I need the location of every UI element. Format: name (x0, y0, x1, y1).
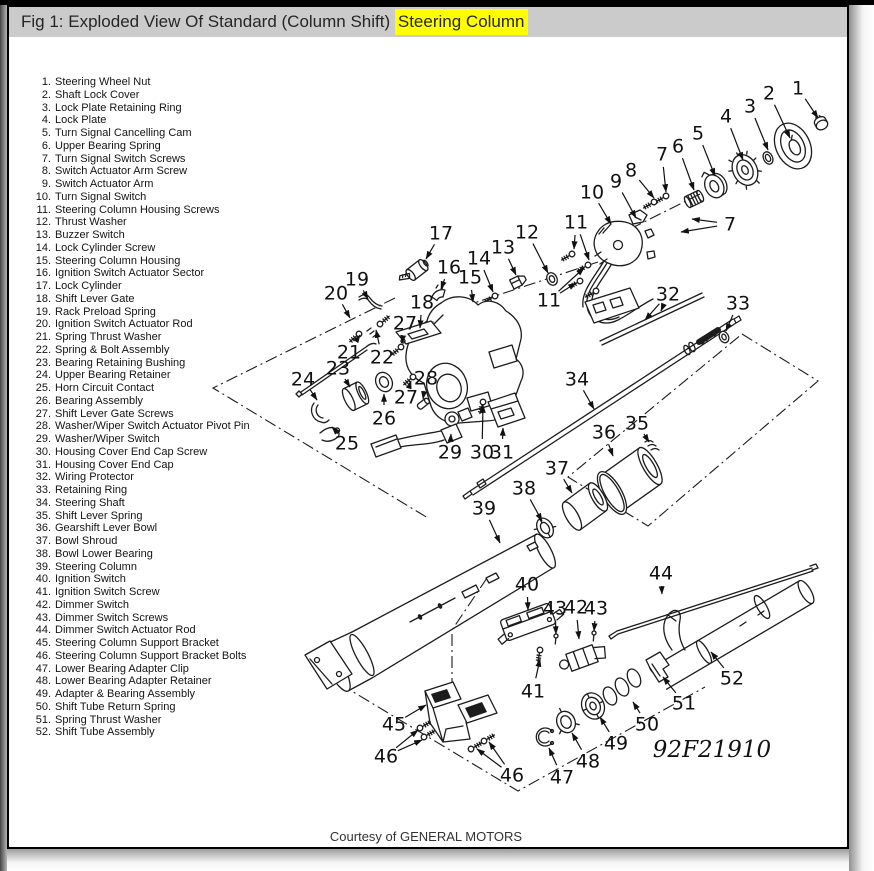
part-name: Steering Wheel Nut (55, 76, 150, 88)
part-number: 50. (28, 701, 51, 714)
panel-shadow-right (849, 5, 874, 871)
parts-list-item: 47.Lower Bearing Adapter Clip (28, 663, 250, 676)
parts-list-item: 34.Steering Shaft (28, 497, 250, 510)
part-number: 12. (28, 216, 51, 229)
parts-list-item: 13.Buzzer Switch (28, 229, 250, 242)
part-name: Shaft Lock Cover (55, 89, 139, 101)
parts-list-item: 4.Lock Plate (28, 114, 250, 127)
parts-list-item: 10.Turn Signal Switch (28, 191, 250, 204)
part-name: Steering Column Support Bracket (55, 637, 219, 649)
parts-list-item: 14.Lock Cylinder Screw (28, 242, 250, 255)
parts-list-item: 17.Lock Cylinder (28, 280, 250, 293)
part-number: 52. (28, 726, 51, 739)
part-name: Turn Signal Cancelling Cam (55, 127, 192, 139)
part-number: 9. (28, 178, 51, 191)
parts-list-item: 28.Washer/Wiper Switch Actuator Pivot Pi… (28, 420, 250, 433)
part-name: Dimmer Switch Screws (55, 612, 168, 624)
part-number: 13. (28, 229, 51, 242)
figure-title-bar: Fig 1: Exploded View Of Standard (Column… (9, 7, 847, 37)
parts-list-item: 12.Thrust Washer (28, 216, 250, 229)
part-number: 4. (28, 114, 51, 127)
parts-list-item: 27.Shift Lever Gate Screws (28, 408, 250, 421)
parts-list-item: 9.Switch Actuator Arm (28, 178, 250, 191)
parts-list-item: 23.Bearing Retaining Bushing (28, 357, 250, 370)
part-name: Upper Bearing Retainer (55, 369, 171, 381)
window-left-edge (0, 5, 7, 871)
part-name: Switch Actuator Arm (55, 178, 153, 190)
parts-list-item: 39.Steering Column (28, 561, 250, 574)
part-number: 34. (28, 497, 51, 510)
part-name: Lock Plate (55, 114, 106, 126)
part-number: 44. (28, 624, 51, 637)
part-name: Buzzer Switch (55, 229, 125, 241)
part-name: Steering Column Housing (55, 255, 180, 267)
parts-list-item: 41.Ignition Switch Screw (28, 586, 250, 599)
parts-list-item: 36.Gearshift Lever Bowl (28, 522, 250, 535)
parts-list-item: 48.Lower Bearing Adapter Retainer (28, 675, 250, 688)
part-name: Steering Column Support Bracket Bolts (55, 650, 246, 662)
part-name: Ignition Switch (55, 573, 126, 585)
part-number: 36. (28, 522, 51, 535)
part-number: 23. (28, 357, 51, 370)
parts-list-item: 22.Spring & Bolt Assembly (28, 344, 250, 357)
part-name: Lock Cylinder Screw (55, 242, 155, 254)
part-name: Dimmer Switch (55, 599, 129, 611)
parts-list-item: 52.Shift Tube Assembly (28, 726, 250, 739)
part-name: Housing Cover End Cap Screw (55, 446, 207, 458)
part-number: 20. (28, 318, 51, 331)
parts-list-item: 30.Housing Cover End Cap Screw (28, 446, 250, 459)
part-name: Turn Signal Switch (55, 191, 146, 203)
part-number: 17. (28, 280, 51, 293)
parts-list-item: 7.Turn Signal Switch Screws (28, 153, 250, 166)
parts-list-item: 40.Ignition Switch (28, 573, 250, 586)
part-number: 16. (28, 267, 51, 280)
parts-list-item: 18.Shift Lever Gate (28, 293, 250, 306)
part-name: Spring & Bolt Assembly (55, 344, 169, 356)
part-number: 18. (28, 293, 51, 306)
part-number: 7. (28, 153, 51, 166)
part-number: 39. (28, 561, 51, 574)
parts-list-item: 5.Turn Signal Cancelling Cam (28, 127, 250, 140)
panel-shadow-bottom (7, 847, 849, 871)
figure-title-highlight: Steering Column (395, 9, 528, 35)
part-number: 14. (28, 242, 51, 255)
parts-list-item: 16.Ignition Switch Actuator Sector (28, 267, 250, 280)
credit-line: Courtesy of GENERAL MOTORS (7, 829, 845, 844)
part-name: Thrust Washer (55, 216, 127, 228)
part-name: Bowl Shroud (55, 535, 117, 547)
parts-list-item: 6.Upper Bearing Spring (28, 140, 250, 153)
parts-list-item: 29.Washer/Wiper Switch (28, 433, 250, 446)
part-name: Retaining Ring (55, 484, 127, 496)
parts-list-item: 15.Steering Column Housing (28, 255, 250, 268)
part-name: Spring Thrust Washer (55, 714, 161, 726)
part-name: Washer/Wiper Switch Actuator Pivot Pin (55, 420, 250, 432)
part-number: 3. (28, 102, 51, 115)
part-number: 22. (28, 344, 51, 357)
part-name: Ignition Switch Actuator Sector (55, 267, 204, 279)
figure-title: Fig 1: Exploded View Of Standard (Column… (21, 12, 395, 32)
parts-list-item: 1.Steering Wheel Nut (28, 76, 250, 89)
parts-list-item: 49.Adapter & Bearing Assembly (28, 688, 250, 701)
part-number: 41. (28, 586, 51, 599)
part-name: Adapter & Bearing Assembly (55, 688, 195, 700)
part-number: 15. (28, 255, 51, 268)
part-number: 43. (28, 612, 51, 625)
part-number: 10. (28, 191, 51, 204)
part-number: 45. (28, 637, 51, 650)
part-name: Lock Cylinder (55, 280, 122, 292)
part-number: 38. (28, 548, 51, 561)
part-name: Horn Circuit Contact (55, 382, 154, 394)
part-name: Gearshift Lever Bowl (55, 522, 157, 534)
part-name: Shift Tube Return Spring (55, 701, 175, 713)
parts-list-item: 33.Retaining Ring (28, 484, 250, 497)
part-number: 48. (28, 675, 51, 688)
part-name: Lower Bearing Adapter Clip (55, 663, 189, 675)
part-name: Steering Shaft (55, 497, 125, 509)
parts-list-item: 21.Spring Thrust Washer (28, 331, 250, 344)
part-number: 30. (28, 446, 51, 459)
part-number: 35. (28, 510, 51, 523)
parts-list-item: 32.Wiring Protector (28, 471, 250, 484)
part-number: 28. (28, 420, 51, 433)
parts-list-item: 3.Lock Plate Retaining Ring (28, 102, 250, 115)
parts-list-item: 26.Bearing Assembly (28, 395, 250, 408)
part-number: 19. (28, 306, 51, 319)
part-name: Upper Bearing Spring (55, 140, 161, 152)
part-number: 2. (28, 89, 51, 102)
part-number: 29. (28, 433, 51, 446)
part-name: Dimmer Switch Actuator Rod (55, 624, 196, 636)
part-name: Turn Signal Switch Screws (55, 153, 185, 165)
parts-list-item: 50.Shift Tube Return Spring (28, 701, 250, 714)
part-number: 42. (28, 599, 51, 612)
part-name: Housing Cover End Cap (55, 459, 174, 471)
parts-list-item: 25.Horn Circuit Contact (28, 382, 250, 395)
part-name: Bearing Assembly (55, 395, 143, 407)
parts-list-item: 24.Upper Bearing Retainer (28, 369, 250, 382)
parts-list-item: 2.Shaft Lock Cover (28, 89, 250, 102)
part-name: Lock Plate Retaining Ring (55, 102, 182, 114)
part-name: Bearing Retaining Bushing (55, 357, 185, 369)
part-number: 21. (28, 331, 51, 344)
part-number: 11. (28, 204, 51, 217)
part-name: Shift Lever Gate (55, 293, 135, 305)
part-number: 46. (28, 650, 51, 663)
parts-list-item: 43.Dimmer Switch Screws (28, 612, 250, 625)
part-number: 31. (28, 459, 51, 472)
part-name: Spring Thrust Washer (55, 331, 161, 343)
part-number: 33. (28, 484, 51, 497)
parts-list-item: 19.Rack Preload Spring (28, 306, 250, 319)
parts-list-item: 38.Bowl Lower Bearing (28, 548, 250, 561)
parts-list-item: 42.Dimmer Switch (28, 599, 250, 612)
part-number: 1. (28, 76, 51, 89)
part-name: Shift Tube Assembly (55, 726, 155, 738)
part-name: Washer/Wiper Switch (55, 433, 160, 445)
part-name: Lower Bearing Adapter Retainer (55, 675, 212, 687)
parts-list-item: 51.Spring Thrust Washer (28, 714, 250, 727)
parts-list-item: 11.Steering Column Housing Screws (28, 204, 250, 217)
part-number: 49. (28, 688, 51, 701)
part-name: Ignition Switch Actuator Rod (55, 318, 193, 330)
part-name: Shift Lever Spring (55, 510, 142, 522)
parts-list: 1.Steering Wheel Nut2.Shaft Lock Cover3.… (28, 76, 250, 739)
part-number: 26. (28, 395, 51, 408)
parts-list-item: 44.Dimmer Switch Actuator Rod (28, 624, 250, 637)
parts-list-item: 35.Shift Lever Spring (28, 510, 250, 523)
part-name: Steering Column Housing Screws (55, 204, 219, 216)
part-name: Switch Actuator Arm Screw (55, 165, 187, 177)
part-number: 37. (28, 535, 51, 548)
parts-list-item: 46.Steering Column Support Bracket Bolts (28, 650, 250, 663)
part-name: Shift Lever Gate Screws (55, 408, 174, 420)
parts-list-item: 31.Housing Cover End Cap (28, 459, 250, 472)
part-number: 5. (28, 127, 51, 140)
part-number: 8. (28, 165, 51, 178)
part-name: Ignition Switch Screw (55, 586, 160, 598)
part-number: 25. (28, 382, 51, 395)
part-number: 47. (28, 663, 51, 676)
part-number: 24. (28, 369, 51, 382)
part-number: 27. (28, 408, 51, 421)
part-number: 32. (28, 471, 51, 484)
parts-list-item: 20.Ignition Switch Actuator Rod (28, 318, 250, 331)
parts-list-item: 37.Bowl Shroud (28, 535, 250, 548)
part-number: 51. (28, 714, 51, 727)
parts-list-item: 45.Steering Column Support Bracket (28, 637, 250, 650)
part-number: 40. (28, 573, 51, 586)
part-name: Bowl Lower Bearing (55, 548, 153, 560)
part-name: Steering Column (55, 561, 137, 573)
part-name: Rack Preload Spring (55, 306, 156, 318)
part-number: 6. (28, 140, 51, 153)
parts-list-item: 8.Switch Actuator Arm Screw (28, 165, 250, 178)
part-name: Wiring Protector (55, 471, 134, 483)
